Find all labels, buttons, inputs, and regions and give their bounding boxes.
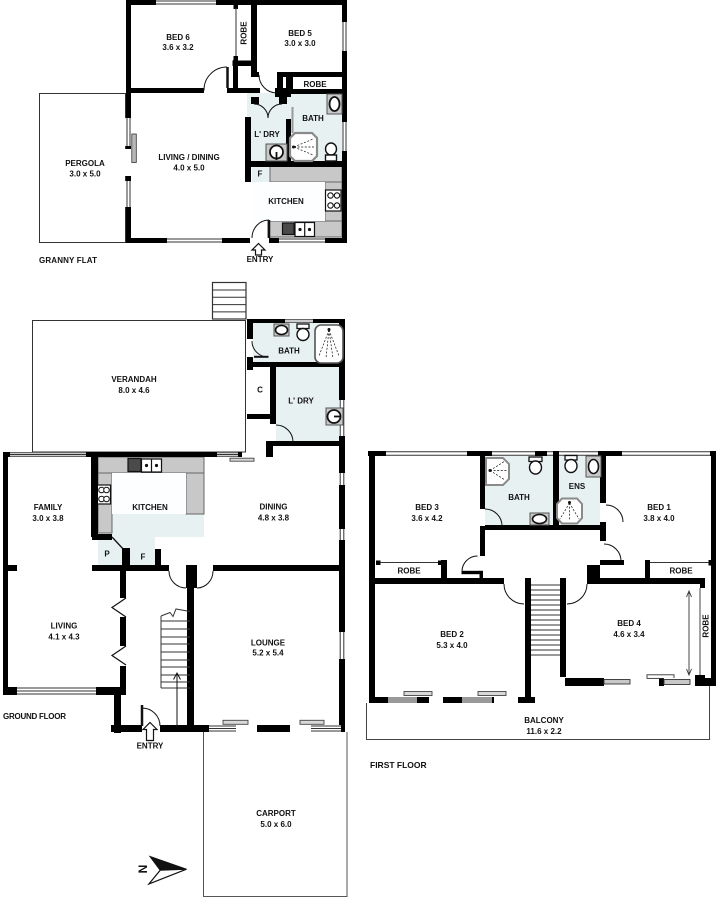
svg-text:N: N [136,865,150,874]
svg-text:3.0 x 3.0: 3.0 x 3.0 [284,39,316,48]
svg-text:4.1 x 4.3: 4.1 x 4.3 [48,633,80,642]
svg-text:5.0 x 6.0: 5.0 x 6.0 [260,820,292,829]
svg-text:LOUNGE: LOUNGE [251,639,286,648]
svg-text:4.0 x 5.0: 4.0 x 5.0 [173,164,205,173]
svg-text:BED 6: BED 6 [166,33,190,42]
svg-text:ENS: ENS [569,482,586,491]
svg-text:GROUND FLOOR: GROUND FLOOR [3,712,66,721]
svg-text:DINING: DINING [260,503,288,512]
svg-text:VERANDAH: VERANDAH [111,375,157,384]
svg-text:5.2 x 5.4: 5.2 x 5.4 [252,649,284,658]
svg-text:ROBE: ROBE [702,614,711,638]
svg-text:FAMILY: FAMILY [34,503,63,512]
svg-text:8.0 x 4.6: 8.0 x 4.6 [118,386,150,395]
svg-text:C: C [257,386,263,395]
svg-text:ENTRY: ENTRY [137,742,164,751]
svg-text:BATH: BATH [302,114,324,123]
svg-text:GRANNY FLAT: GRANNY FLAT [39,256,97,265]
svg-text:4.8 x 3.8: 4.8 x 3.8 [258,514,290,523]
svg-text:F: F [141,553,146,562]
svg-text:FIRST FLOOR: FIRST FLOOR [370,760,427,770]
svg-text:3.6 x 4.2: 3.6 x 4.2 [411,514,443,523]
svg-text:L' DRY: L' DRY [288,397,314,406]
svg-text:KITCHEN: KITCHEN [132,503,168,512]
svg-text:3.0 x 5.0: 3.0 x 5.0 [69,170,101,179]
svg-text:F: F [258,170,263,179]
svg-text:11.6 x 2.2: 11.6 x 2.2 [526,727,562,736]
svg-text:3.8 x 4.0: 3.8 x 4.0 [643,514,675,523]
svg-text:BED 1: BED 1 [647,503,671,512]
svg-text:4.6 x 3.4: 4.6 x 3.4 [613,630,645,639]
svg-text:P: P [104,550,110,559]
svg-text:BATH: BATH [508,493,530,502]
svg-text:KITCHEN: KITCHEN [268,197,304,206]
svg-text:LIVING: LIVING [51,622,78,631]
svg-text:5.3 x 4.0: 5.3 x 4.0 [436,641,468,650]
svg-text:ENTRY: ENTRY [247,255,274,264]
svg-text:LIVING / DINING: LIVING / DINING [158,153,219,162]
svg-text:ROBE: ROBE [397,567,421,576]
svg-text:3.6 x 3.2: 3.6 x 3.2 [162,43,194,52]
svg-text:L' DRY: L' DRY [254,130,280,139]
svg-text:ROBE: ROBE [303,80,327,89]
svg-text:BED 4: BED 4 [617,619,641,628]
svg-text:BED 3: BED 3 [415,503,439,512]
svg-text:BED 5: BED 5 [288,29,312,38]
svg-text:ROBE: ROBE [240,21,249,45]
svg-text:ROBE: ROBE [669,567,693,576]
svg-text:BALCONY: BALCONY [524,716,564,725]
svg-text:BED 2: BED 2 [440,630,464,639]
svg-text:CARPORT: CARPORT [256,809,296,818]
svg-text:BATH: BATH [278,347,300,356]
svg-text:PERGOLA: PERGOLA [65,159,105,168]
svg-text:3.0 x 3.8: 3.0 x 3.8 [32,514,64,523]
